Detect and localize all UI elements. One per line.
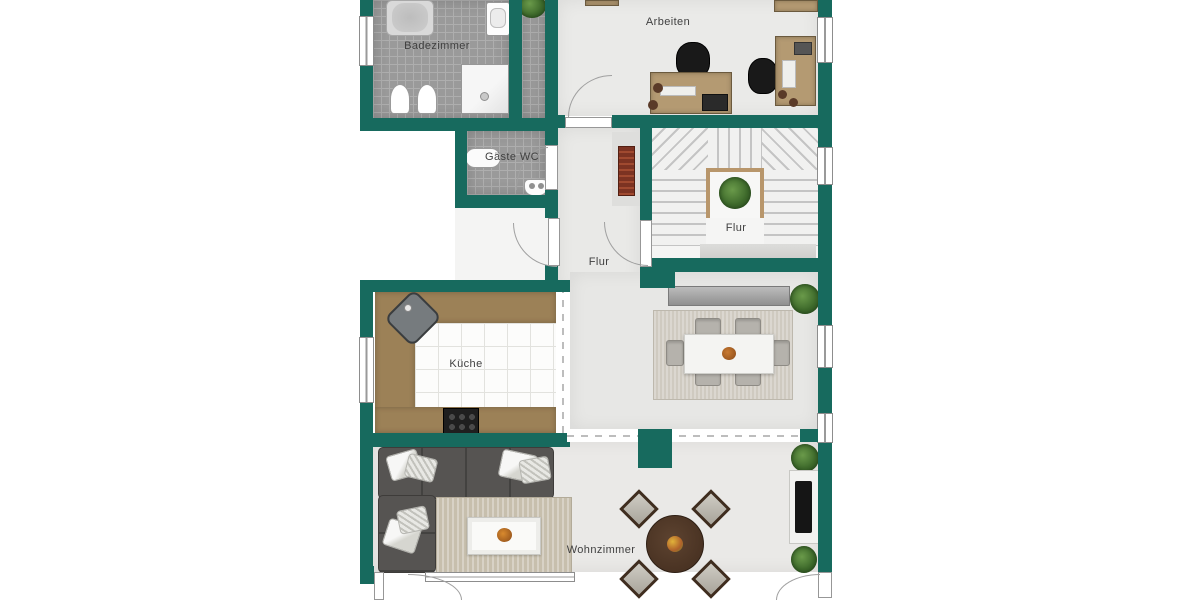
room-label-kueche: Küche xyxy=(449,358,482,370)
tv xyxy=(795,481,812,533)
shower xyxy=(461,64,509,114)
radiator xyxy=(618,146,635,196)
wall xyxy=(800,429,818,442)
sideboard xyxy=(668,286,790,306)
wall xyxy=(360,566,374,584)
open-passage xyxy=(556,292,570,433)
stool xyxy=(778,90,787,99)
plant xyxy=(791,444,819,472)
plant xyxy=(719,177,751,209)
laptop xyxy=(702,94,728,111)
wall xyxy=(556,115,565,128)
plant xyxy=(790,284,820,314)
staircase xyxy=(762,128,818,170)
office-chair xyxy=(748,58,778,94)
wall xyxy=(612,115,832,128)
wall xyxy=(455,195,558,208)
room-label-flur: Flur xyxy=(589,256,610,268)
desk xyxy=(585,0,619,6)
staircase xyxy=(652,128,708,170)
window xyxy=(359,16,374,66)
wall xyxy=(640,258,832,272)
bidet xyxy=(417,84,437,114)
desk-paper xyxy=(660,86,696,96)
desk xyxy=(774,0,818,12)
wall xyxy=(640,128,652,220)
stool xyxy=(648,100,658,110)
window xyxy=(817,147,833,185)
door-swing xyxy=(776,574,820,600)
kitchen-floor xyxy=(415,323,556,407)
window xyxy=(359,337,374,403)
wall xyxy=(818,185,832,325)
open-passage xyxy=(567,429,818,442)
wall xyxy=(638,429,672,468)
wall xyxy=(509,0,522,122)
window xyxy=(817,413,833,443)
centerpiece xyxy=(722,347,736,360)
room-label-flur-treppe: Flur xyxy=(726,222,747,234)
shower-drain xyxy=(480,92,489,101)
stool xyxy=(789,98,798,107)
washbasin-bowl xyxy=(490,8,506,28)
window xyxy=(425,572,575,582)
window xyxy=(817,17,833,63)
cushion xyxy=(518,456,552,485)
fruit-bowl xyxy=(497,528,512,542)
staircase xyxy=(764,170,818,246)
window xyxy=(817,325,833,368)
wall xyxy=(360,403,373,584)
wall xyxy=(545,190,558,218)
kitchen-faucet xyxy=(404,304,412,312)
door xyxy=(565,117,612,128)
wall xyxy=(363,280,570,292)
toilet xyxy=(390,84,410,114)
wall xyxy=(818,63,832,147)
room-label-arbeiten: Arbeiten xyxy=(646,16,690,28)
dining-chair xyxy=(772,340,790,366)
stair-bottom-landing xyxy=(700,244,816,258)
wall xyxy=(818,443,832,573)
room-label-gaeste-wc: Gäste WC xyxy=(485,151,539,163)
door xyxy=(374,572,384,600)
floor-plan: Badezimmer Arbeiten Gäste WC Flur Flur K… xyxy=(0,0,1200,600)
room-label-wohnzimmer: Wohnzimmer xyxy=(567,544,636,556)
bathtub-basin xyxy=(392,3,428,32)
door xyxy=(818,572,832,598)
wall xyxy=(640,272,675,288)
fruit-bowl xyxy=(667,536,683,552)
staircase xyxy=(708,128,762,170)
room-label-badezimmer: Badezimmer xyxy=(404,40,470,52)
stove xyxy=(443,408,479,434)
stool xyxy=(653,83,663,93)
desk-paper xyxy=(782,60,796,88)
wall xyxy=(818,368,832,413)
wall xyxy=(818,0,832,17)
wall xyxy=(363,433,570,447)
monitor xyxy=(794,42,812,55)
dining-chair xyxy=(666,340,684,366)
staircase xyxy=(652,170,706,246)
plant xyxy=(791,546,817,573)
